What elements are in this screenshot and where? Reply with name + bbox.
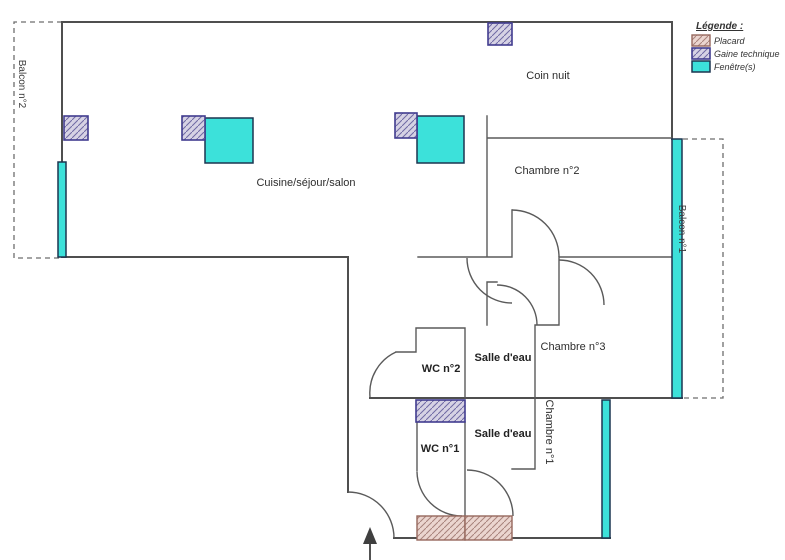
- window-kitchen-1: [205, 118, 253, 163]
- gaine-kitchen-1: [182, 116, 205, 140]
- placard-left: [417, 516, 465, 540]
- floor-plan: Coin nuit Cuisine/séjour/salon Chambre n…: [0, 0, 785, 560]
- label-wc-1: WC n°1: [421, 443, 460, 455]
- legend-item-fenetre: Fenêtre(s): [714, 62, 756, 72]
- window-left-wall: [58, 162, 66, 257]
- legend-title: Légende :: [696, 21, 743, 32]
- label-salle-eau-haut: Salle d'eau: [474, 352, 531, 364]
- entrance-arrow: [363, 527, 377, 560]
- floor-plan-page: Coin nuit Cuisine/séjour/salon Chambre n…: [0, 0, 785, 560]
- door-arcs: [348, 210, 604, 538]
- label-balcon-2: Balcon n°2: [16, 60, 27, 109]
- window-chambre1: [602, 400, 610, 538]
- label-chambre-1: Chambre n°1: [543, 400, 555, 465]
- windows: [58, 116, 682, 538]
- label-chambre-3: Chambre n°3: [541, 341, 606, 353]
- legend-swatch-placard: [692, 35, 710, 46]
- label-cuisine-sejour-salon: Cuisine/séjour/salon: [256, 177, 355, 189]
- legend-item-gaine: Gaine technique: [714, 49, 780, 59]
- window-kitchen-2: [417, 116, 464, 163]
- label-salle-eau-bas: Salle d'eau: [474, 428, 531, 440]
- placard-right: [465, 516, 512, 540]
- legend-swatch-gaine: [692, 48, 710, 59]
- legend: Légende : Placard Gaine technique Fenêtr…: [692, 21, 780, 72]
- label-balcon-1: Balcon n°1: [676, 205, 687, 254]
- window-balcony1: [672, 139, 682, 398]
- label-wc-2: WC n°2: [422, 363, 461, 375]
- label-coin-nuit: Coin nuit: [526, 70, 569, 82]
- gaine-left-wall: [64, 116, 88, 140]
- legend-item-placard: Placard: [714, 36, 746, 46]
- placards: [417, 516, 512, 540]
- legend-swatch-fenetre: [692, 61, 710, 72]
- gaine-coin-nuit: [488, 23, 512, 45]
- gaine-kitchen-2: [395, 113, 417, 138]
- outer-walls: [62, 22, 682, 538]
- balcony1-dashed-boundary: [683, 139, 723, 398]
- balcony2-dashed-boundary: [14, 22, 62, 258]
- label-chambre-2: Chambre n°2: [515, 165, 580, 177]
- gaine-corridor: [416, 400, 465, 422]
